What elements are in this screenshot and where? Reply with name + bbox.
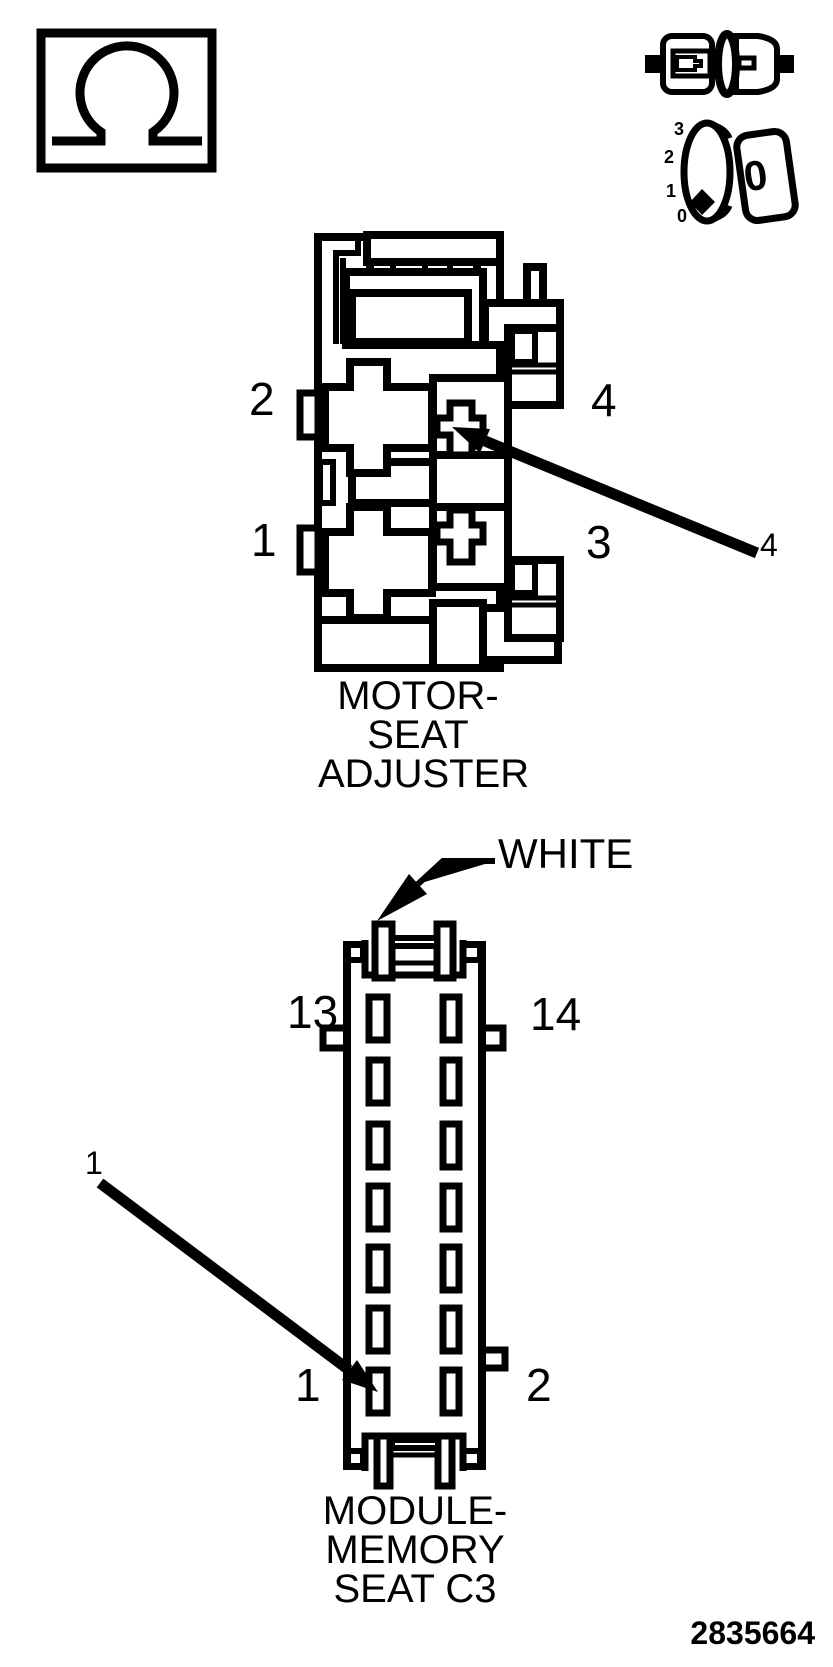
module-pin-2-label: 2 (526, 1362, 552, 1408)
module-pin-13-label: 13 (287, 989, 338, 1035)
disconnected-connector-icon (645, 34, 794, 94)
module-pin-14-label: 14 (530, 991, 581, 1037)
module-pin-1-label: 1 (295, 1362, 321, 1408)
motor-connector-title: MOTOR- SEAT ADJUSTER (318, 677, 518, 794)
diagram-artwork (0, 0, 833, 1667)
terminal-slot-pin-2 (443, 1370, 459, 1413)
white-wire-leader-arrow (377, 861, 495, 921)
memory-seat-module-connector-drawing (323, 924, 505, 1486)
module-title-line-3: SEAT C3 (315, 1570, 515, 1609)
motor-title-line-3: ADJUSTER (318, 755, 518, 794)
service-manual-diagram-page: 3 2 1 0 0 2 1 4 3 4 MOTOR- SEAT ADJUSTER… (0, 0, 833, 1667)
white-wire-label: WHITE (498, 833, 633, 875)
ignition-switch-position-icon (684, 123, 797, 222)
motor-title-line-2: SEAT (318, 716, 518, 755)
ignition-position-1-label: 1 (666, 182, 676, 200)
callout-arrow-pin-1 (100, 1183, 378, 1392)
ohmmeter-icon (41, 33, 212, 168)
terminal-slot-pin-1 (369, 1370, 387, 1413)
motor-pin-3-label: 3 (586, 519, 612, 565)
motor-pin-4-label: 4 (591, 377, 617, 423)
module-title-line-1: MODULE- (315, 1492, 515, 1531)
ignition-position-2-label: 2 (664, 148, 674, 166)
ignition-position-3-label: 3 (674, 120, 684, 138)
ignition-position-0-label: 0 (677, 207, 687, 225)
motor-pin-1-label: 1 (251, 517, 277, 563)
module-title-line-2: MEMORY (315, 1531, 515, 1570)
figure-number: 2835664 (675, 1617, 815, 1649)
motor-title-line-1: MOTOR- (318, 677, 518, 716)
module-connector-title: MODULE- MEMORY SEAT C3 (315, 1492, 515, 1609)
motor-callout-4-label: 4 (760, 529, 778, 561)
module-callout-1-label: 1 (85, 1147, 103, 1179)
motor-pin-2-label: 2 (249, 376, 275, 422)
